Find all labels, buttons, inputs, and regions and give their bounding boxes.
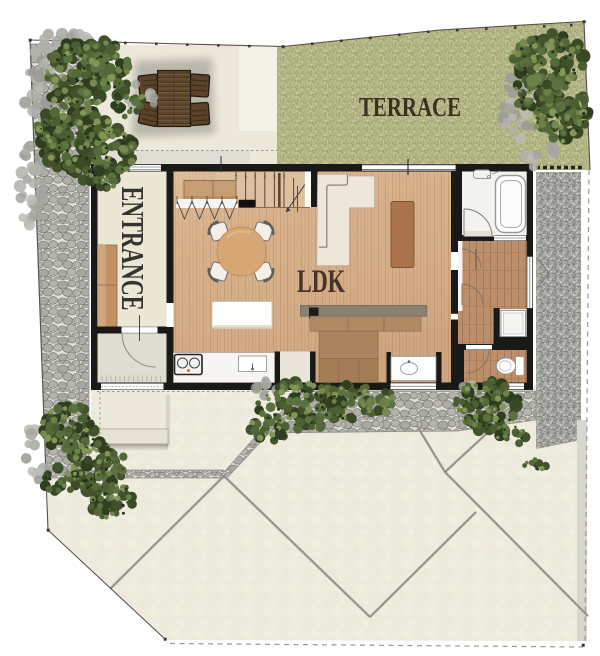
svg-text:TERRACE: TERRACE xyxy=(359,92,461,122)
svg-text:ENTRANCE: ENTRANCE xyxy=(115,187,151,311)
svg-text:5: 5 xyxy=(254,174,256,179)
svg-text:LDK: LDK xyxy=(297,264,345,300)
svg-text:7: 7 xyxy=(235,174,237,179)
svg-text:6: 6 xyxy=(245,174,247,179)
svg-text:3: 3 xyxy=(273,174,275,179)
svg-text:2: 2 xyxy=(283,174,285,179)
